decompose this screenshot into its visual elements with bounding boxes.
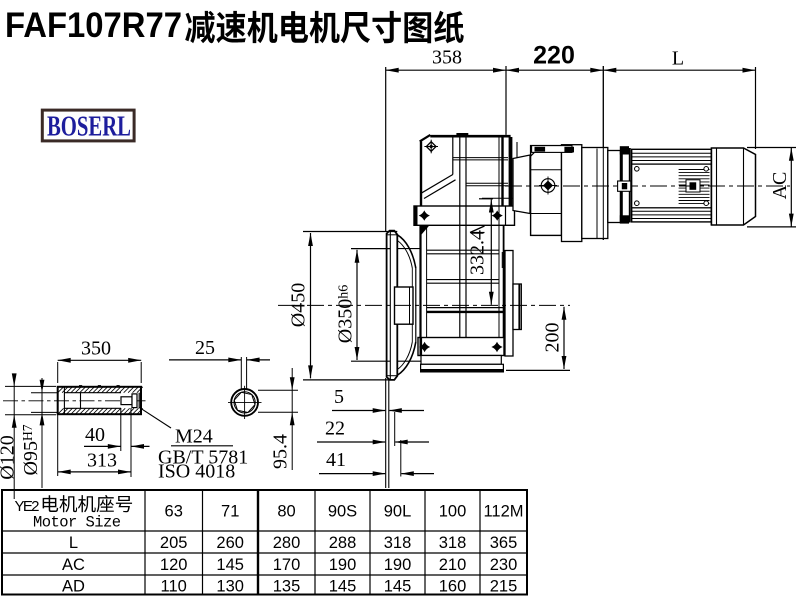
svg-text:AC: AC [62, 556, 85, 574]
svg-text:210: 210 [439, 556, 467, 574]
svg-text:160: 160 [439, 578, 467, 596]
svg-text:80: 80 [277, 503, 295, 521]
svg-text:40: 40 [85, 424, 105, 446]
svg-text:71: 71 [221, 503, 239, 521]
svg-text:170: 170 [273, 556, 301, 574]
svg-text:358: 358 [432, 47, 462, 69]
svg-text:200: 200 [542, 323, 564, 353]
svg-text:90S: 90S [328, 503, 357, 521]
svg-text:M24: M24 [175, 426, 213, 448]
svg-text:Motor Size: Motor Size [33, 514, 121, 532]
svg-text:313: 313 [87, 450, 117, 472]
svg-text:318: 318 [384, 534, 412, 552]
svg-text:63: 63 [165, 503, 183, 521]
svg-text:130: 130 [216, 578, 244, 596]
svg-text:41: 41 [326, 449, 346, 471]
svg-text:L: L [69, 534, 78, 552]
svg-text:YE2: YE2 [15, 498, 40, 515]
svg-text:365: 365 [490, 534, 518, 552]
svg-text:112M: 112M [483, 503, 523, 521]
svg-text:Ø120: Ø120 [0, 435, 18, 479]
svg-text:FAF107R77: FAF107R77 [5, 6, 182, 45]
svg-text:110: 110 [161, 578, 187, 596]
svg-text:288: 288 [329, 534, 357, 552]
svg-text:280: 280 [273, 534, 301, 552]
svg-text:90L: 90L [384, 503, 412, 521]
svg-text:22: 22 [325, 418, 345, 440]
svg-text:260: 260 [216, 534, 244, 552]
svg-text:230: 230 [490, 556, 518, 574]
svg-text:AD: AD [62, 578, 85, 596]
svg-text:L: L [672, 48, 684, 70]
svg-text:190: 190 [384, 556, 412, 574]
svg-text:215: 215 [490, 578, 518, 596]
svg-text:95.4: 95.4 [269, 434, 291, 469]
svg-text:BOSERL: BOSERL [47, 112, 131, 143]
svg-text:190: 190 [329, 556, 357, 574]
svg-text:100: 100 [439, 503, 467, 521]
svg-text:145: 145 [329, 578, 357, 596]
svg-text:350: 350 [81, 338, 111, 360]
svg-text:318: 318 [439, 534, 467, 552]
svg-text:120: 120 [160, 556, 188, 574]
svg-text:25: 25 [195, 337, 215, 359]
svg-text:145: 145 [384, 578, 412, 596]
svg-text:332.4: 332.4 [466, 230, 488, 275]
svg-text:ISO 4018: ISO 4018 [158, 461, 235, 483]
svg-text:5: 5 [334, 386, 344, 408]
svg-text:220: 220 [533, 42, 575, 70]
svg-text:135: 135 [273, 578, 301, 596]
svg-text:145: 145 [216, 556, 244, 574]
svg-text:205: 205 [160, 534, 188, 552]
